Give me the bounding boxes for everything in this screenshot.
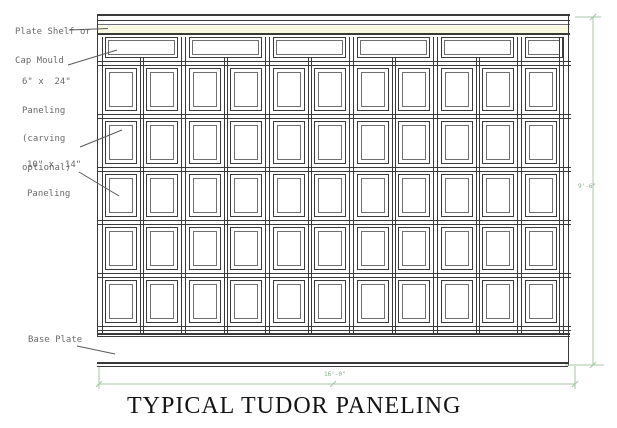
leader-lines xyxy=(68,29,122,355)
annotation-overlay xyxy=(0,0,617,428)
dimension-lines xyxy=(96,14,604,389)
leader-line xyxy=(77,346,115,354)
leader-line xyxy=(80,130,122,147)
leader-line xyxy=(79,172,119,196)
drawing-canvas: Plate Shelf or Cap Mould 6" x 24" Paneli… xyxy=(0,0,617,428)
leader-line xyxy=(69,29,108,31)
leader-line xyxy=(68,50,117,65)
